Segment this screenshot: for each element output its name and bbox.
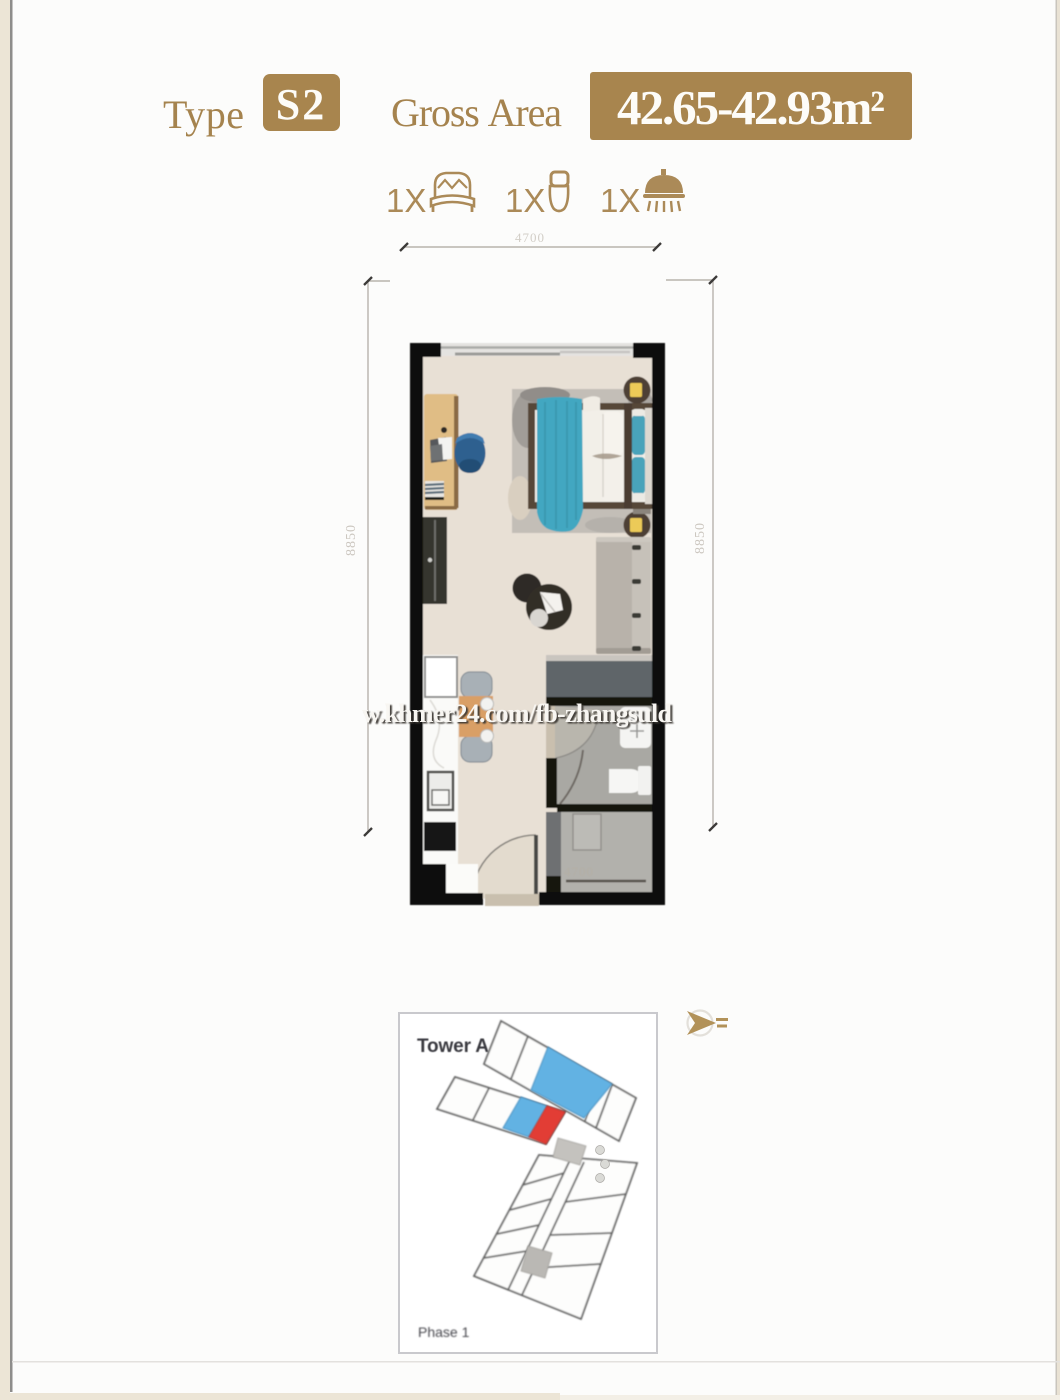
svg-text:Tower A: Tower A xyxy=(417,1036,489,1057)
svg-text:w.khmer24.com/fb-zhangsuld: w.khmer24.com/fb-zhangsuld xyxy=(362,699,673,728)
svg-text:Type: Type xyxy=(163,92,244,137)
svg-text:S2: S2 xyxy=(276,80,326,129)
svg-text:Gross Area: Gross Area xyxy=(391,90,562,135)
svg-text:4700: 4700 xyxy=(515,230,545,245)
svg-text:4700: 4700 xyxy=(564,864,594,879)
svg-text:8850: 8850 xyxy=(344,524,359,556)
svg-text:8850: 8850 xyxy=(693,522,708,554)
svg-text:1X: 1X xyxy=(600,182,640,219)
svg-text:1X: 1X xyxy=(505,182,545,219)
svg-text:Phase 1: Phase 1 xyxy=(418,1324,470,1340)
svg-text:42.65-42.93m²: 42.65-42.93m² xyxy=(617,80,885,135)
svg-text:1X: 1X xyxy=(386,182,426,219)
